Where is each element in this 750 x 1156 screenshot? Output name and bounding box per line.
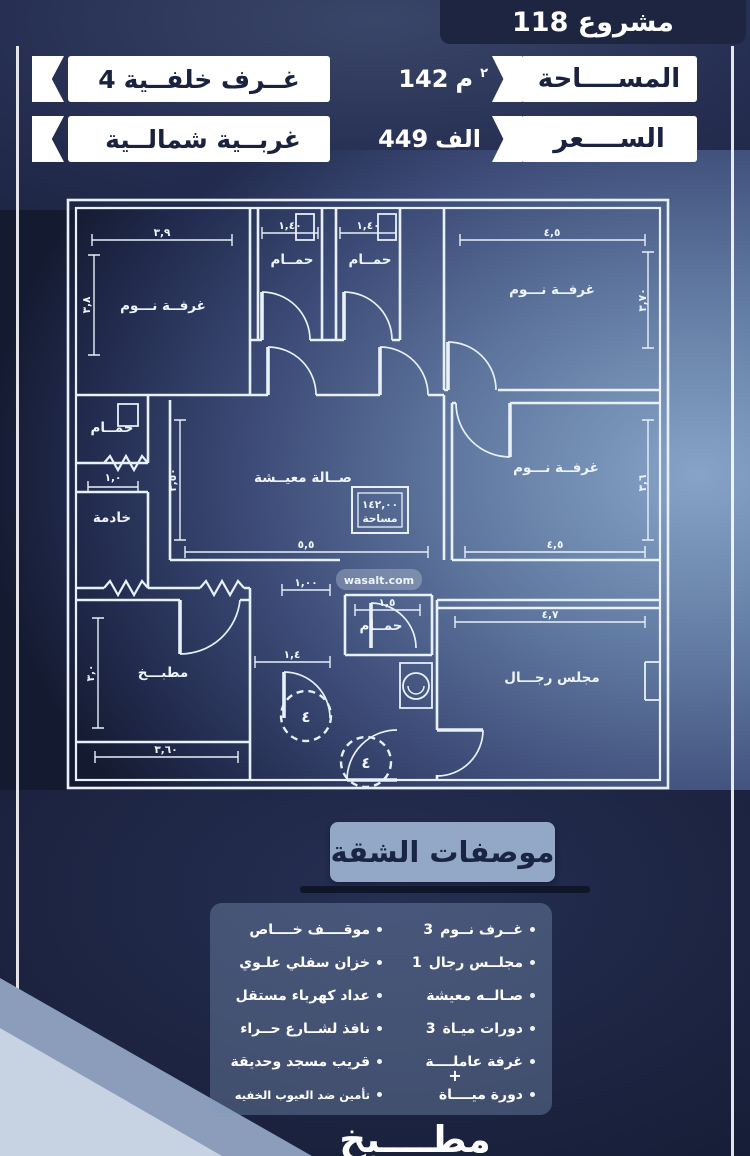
plus-sign: + bbox=[442, 1066, 468, 1086]
spec-item-text: عداد كهرباء مستقل bbox=[236, 988, 370, 1004]
price-value-unit: الف bbox=[435, 125, 481, 153]
bullet-icon bbox=[377, 1092, 382, 1097]
area-value-sup: ٢ bbox=[480, 66, 488, 81]
specs-column-left: موقــــف خــــاص خزان سفلي علـوي عداد كه… bbox=[216, 913, 382, 1111]
badge-orientation: غربــية شمالــية bbox=[68, 116, 330, 162]
spec-item: تأمين ضد العيوب الخفيه bbox=[216, 1078, 382, 1111]
spec-item: نافذ لشــارع حــراء bbox=[216, 1012, 382, 1045]
bullet-icon bbox=[530, 1059, 535, 1064]
poster: مشروع 118 المســــاحة 142م٢ الســــعر 44… bbox=[0, 0, 750, 1156]
badge-back-rooms-number: 4 bbox=[98, 65, 115, 94]
bullet-icon bbox=[377, 1059, 382, 1064]
spec-item: صـالــه معيشة bbox=[385, 979, 535, 1012]
badge-orientation-text: غربــية شمالــية bbox=[105, 125, 301, 154]
bullet-icon bbox=[377, 1026, 382, 1031]
spec-item-text: تأمين ضد العيوب الخفيه bbox=[235, 1088, 370, 1102]
price-label: الســــعر bbox=[553, 124, 665, 154]
footer-kitchen-label: مطــــبخ bbox=[320, 1114, 510, 1156]
spec-item: خزان سفلي علـوي bbox=[216, 946, 382, 979]
spec-item-number: 1 bbox=[412, 955, 422, 971]
specs-underline bbox=[300, 886, 590, 893]
area-value: 142م٢ bbox=[392, 56, 488, 102]
badge-back-rooms: 4 غــرف خلفــية bbox=[68, 56, 330, 102]
spec-item-text: غــرف نــوم bbox=[440, 922, 523, 938]
spec-item-text: دورة ميــــاة bbox=[439, 1087, 523, 1103]
spec-item: 3غــرف نــوم bbox=[385, 913, 535, 946]
bullet-icon bbox=[377, 993, 382, 998]
spec-item-number: 3 bbox=[426, 1021, 436, 1037]
bullet-icon bbox=[530, 960, 535, 965]
spec-item-number: 3 bbox=[423, 922, 433, 938]
spec-item: موقــــف خــــاص bbox=[216, 913, 382, 946]
bullet-icon bbox=[530, 1026, 535, 1031]
spec-item-text: موقــــف خــــاص bbox=[249, 922, 370, 938]
background-plan-glow bbox=[0, 150, 750, 840]
project-title: مشروع 118 bbox=[440, 0, 746, 44]
area-value-number: 142 bbox=[398, 65, 448, 93]
spec-item: 3دورات ميـاة bbox=[385, 1012, 535, 1045]
spec-item: عداد كهرباء مستقل bbox=[216, 979, 382, 1012]
bullet-icon bbox=[377, 960, 382, 965]
area-value-unit: م bbox=[455, 65, 473, 93]
price-label-box: الســــعر bbox=[521, 116, 697, 162]
area-label-box: المســــاحة bbox=[521, 56, 697, 102]
price-value-number: 449 bbox=[378, 125, 428, 153]
spec-item-text: دورات ميـاة bbox=[443, 1021, 523, 1037]
frame-line-right bbox=[731, 46, 734, 1156]
price-value: 449الف bbox=[382, 116, 488, 162]
bullet-icon bbox=[530, 993, 535, 998]
spec-item: قريب مسجد وحديقة bbox=[216, 1045, 382, 1078]
specs-title: موصفات الشقة bbox=[330, 822, 555, 882]
bullet-icon bbox=[377, 927, 382, 932]
badge-back-rooms-text: غــرف خلفــية bbox=[124, 65, 300, 94]
bullet-icon bbox=[530, 927, 535, 932]
bullet-icon bbox=[530, 1092, 535, 1097]
spec-item-text: غرفة عاملــــة bbox=[425, 1054, 523, 1070]
spec-item-text: صـالــه معيشة bbox=[426, 988, 523, 1004]
area-label: المســــاحة bbox=[538, 64, 680, 94]
spec-item-text: خزان سفلي علـوي bbox=[239, 955, 370, 971]
spec-item-text: قريب مسجد وحديقة bbox=[231, 1054, 371, 1070]
spec-item: 1مجلــس رجال bbox=[385, 946, 535, 979]
spec-item-text: نافذ لشــارع حــراء bbox=[240, 1021, 370, 1037]
spec-item-text: مجلــس رجال bbox=[429, 955, 523, 971]
